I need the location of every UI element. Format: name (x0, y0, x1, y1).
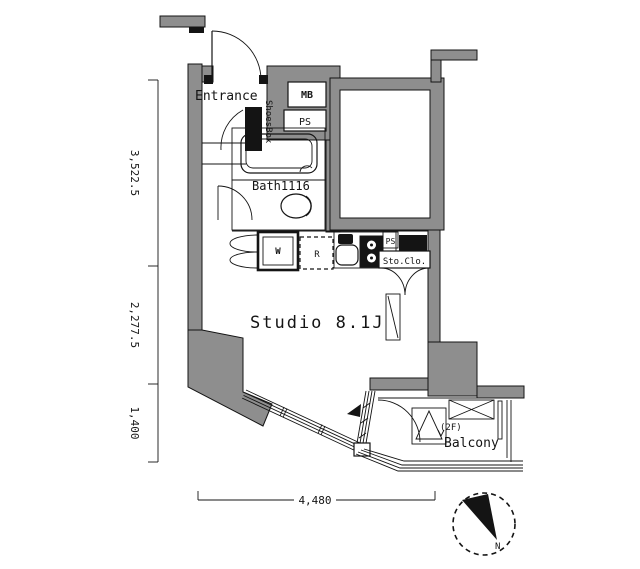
washer-closet-fold-door-lower (230, 252, 257, 268)
label-balcony: Balcony (444, 436, 499, 451)
storage-closet-door-arc-right (405, 268, 429, 295)
stove-burner-bottom-dot (370, 257, 373, 260)
washer-closet-fold-door-upper (230, 235, 257, 252)
wall-block-southeast (428, 342, 477, 396)
dimension-left-lower: 1,400 (128, 406, 141, 439)
studio-wall-panel-diagonal (388, 296, 398, 338)
left-dimension-line (148, 80, 158, 462)
wall-neighbor-room-ring (330, 78, 444, 230)
evacuation-hatch-triangle (416, 411, 442, 439)
dimension-left-upper: 3,522.5 (128, 150, 141, 196)
label-washer: W (275, 247, 281, 257)
wall-bar-studio-south (370, 378, 428, 390)
corridor-wall-notch (189, 27, 204, 33)
floor-plan-page: 3,522.5 2,277.5 1,400 4,480 N Entrance S… (0, 0, 640, 569)
stove-burner-top-dot (370, 244, 373, 247)
balcony-sliding-door (356, 391, 375, 449)
kitchen-sink (336, 245, 358, 265)
label-studio: Studio 8.1J (250, 313, 385, 333)
wall-l-extension-horizontal (431, 50, 477, 60)
shoes-box (245, 107, 262, 151)
label-balcony-floor-note: (2F) (440, 423, 462, 433)
label-entrance: Entrance (195, 89, 258, 104)
storage-closet-door-arc-left (381, 268, 405, 295)
label-fridge: R (314, 250, 320, 260)
entrance-door-strike-block (259, 75, 268, 84)
wall-right (428, 230, 440, 345)
dimension-left-middle: 2,277.5 (128, 302, 141, 348)
dimension-bottom-width: 4,480 (298, 494, 331, 507)
north-label: N (495, 542, 500, 552)
wc-door-arc (218, 186, 252, 220)
wall-left-step-diagonal (188, 330, 272, 426)
entry-direction-arrow (347, 404, 361, 417)
kitchen-faucet-block (338, 234, 353, 244)
wall-bar-balcony-top (477, 386, 524, 398)
floor-plan-svg: 3,522.5 2,277.5 1,400 4,480 N Entrance S… (0, 0, 640, 569)
label-shoes-box: ShoesBox (263, 100, 273, 144)
label-bath: Bath1116 (252, 179, 310, 193)
label-meter-box: MB (301, 90, 313, 101)
balcony-partition-panel (498, 401, 502, 439)
balcony-door-arc (378, 400, 420, 442)
corridor-wall-fragment (160, 16, 205, 27)
label-storage-closet: Sto.Clo. (383, 257, 426, 267)
label-pipe-space-kitchen: PS (386, 237, 396, 246)
bathtub-drain-arc (300, 166, 312, 172)
entrance-door-arc (212, 31, 261, 80)
toilet-bowl (281, 194, 311, 218)
north-arrow (462, 494, 497, 540)
label-pipe-space-upper: PS (299, 117, 311, 128)
